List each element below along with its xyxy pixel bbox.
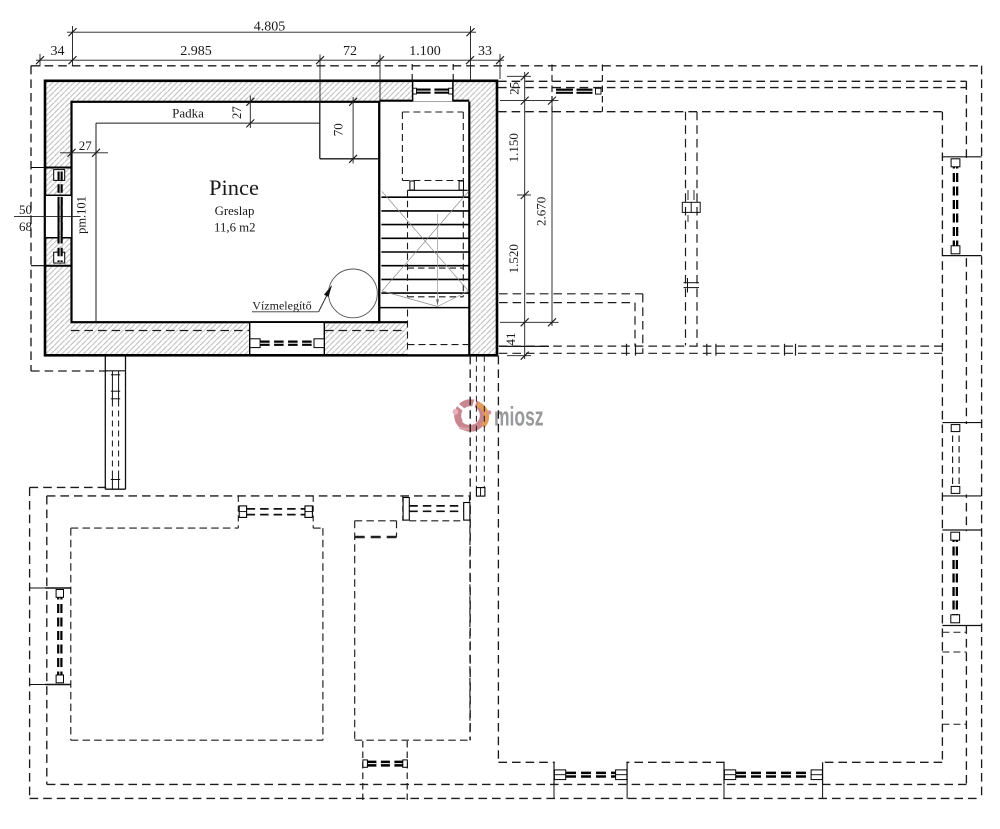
svg-text:1.150: 1.150 bbox=[506, 133, 521, 162]
svg-text:70: 70 bbox=[330, 123, 345, 136]
svg-text:33: 33 bbox=[478, 44, 492, 59]
svg-text:68: 68 bbox=[19, 219, 32, 234]
svg-text:34: 34 bbox=[51, 44, 65, 59]
svg-text:72: 72 bbox=[343, 44, 357, 59]
svg-text:1.520: 1.520 bbox=[506, 244, 521, 273]
svg-text:Pince: Pince bbox=[209, 175, 259, 200]
svg-text:miosz: miosz bbox=[494, 402, 544, 432]
svg-text:27: 27 bbox=[79, 138, 93, 153]
svg-text:41: 41 bbox=[503, 333, 518, 346]
svg-text:2.985: 2.985 bbox=[180, 44, 212, 59]
svg-text:25: 25 bbox=[507, 82, 522, 95]
svg-text:4.805: 4.805 bbox=[254, 19, 286, 34]
svg-text:Greslap: Greslap bbox=[215, 204, 255, 218]
svg-text:1.100: 1.100 bbox=[409, 44, 441, 59]
svg-text:pm.101: pm.101 bbox=[75, 196, 89, 234]
svg-text:50: 50 bbox=[19, 202, 32, 217]
svg-text:27: 27 bbox=[229, 106, 244, 120]
svg-text:Vízmelegítő: Vízmelegítő bbox=[252, 298, 311, 312]
svg-text:11,6 m2: 11,6 m2 bbox=[214, 221, 255, 235]
svg-text:Padka: Padka bbox=[172, 106, 204, 121]
svg-text:2.670: 2.670 bbox=[533, 197, 548, 226]
